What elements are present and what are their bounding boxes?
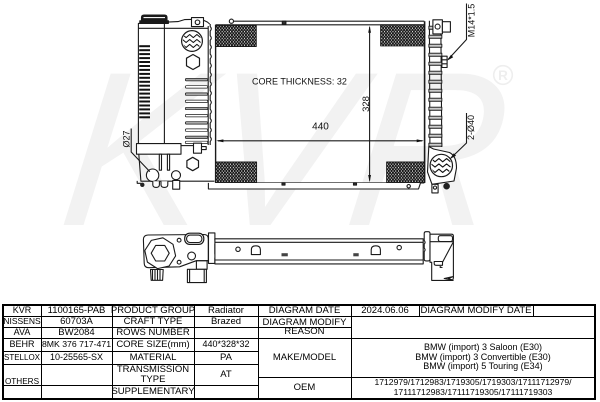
svg-text:M14*1.5: M14*1.5 (467, 4, 477, 38)
svg-text:440: 440 (312, 121, 329, 132)
svg-text:Ø27: Ø27 (122, 130, 132, 147)
svg-text:2-Ø40: 2-Ø40 (466, 115, 476, 140)
svg-text:R: R (498, 68, 508, 83)
svg-text:CORE THICKNESS: 32: CORE THICKNESS: 32 (252, 77, 347, 87)
svg-text:328: 328 (361, 96, 372, 112)
